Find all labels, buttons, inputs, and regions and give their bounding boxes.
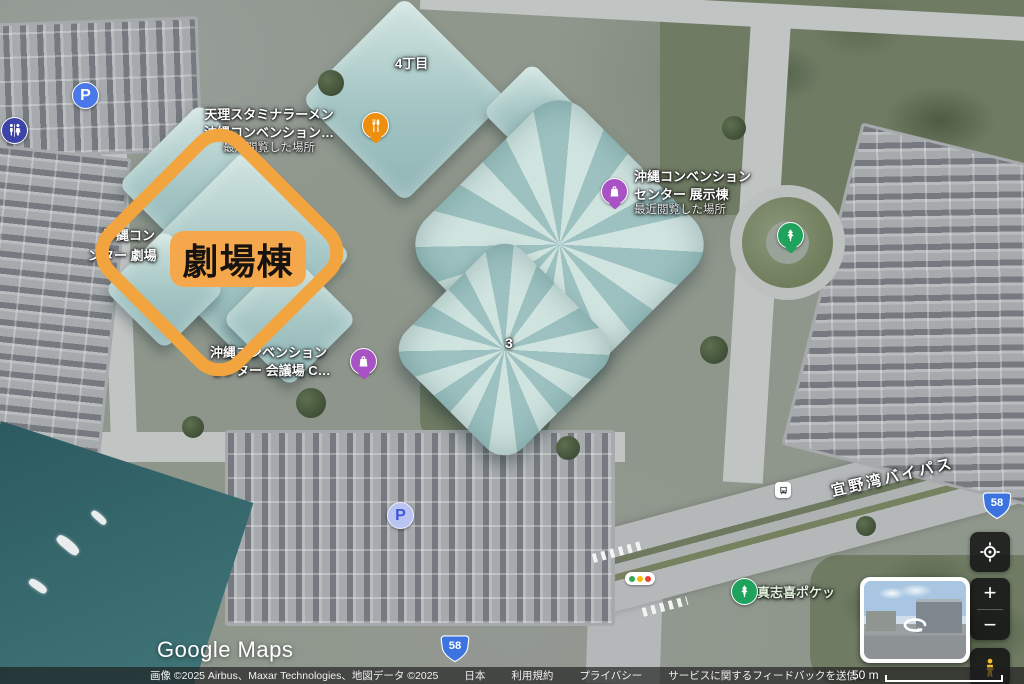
zoom-control: + − — [970, 578, 1010, 640]
route-shield-58-bottom: 58 — [440, 635, 470, 663]
google-maps-logo[interactable]: Google Maps — [157, 637, 293, 663]
zoom-in-button[interactable]: + — [970, 578, 1010, 609]
restaurant-icon[interactable] — [362, 112, 389, 139]
label-park-mashiki-pocket[interactable]: 真志喜ポケッ — [757, 584, 835, 602]
link-terms[interactable]: 利用規約 — [511, 668, 553, 683]
attraction-icon-exhibition[interactable] — [601, 178, 628, 205]
imagery-credit: 画像 ©2025 Airbus、Maxar Technologies、地図データ… — [150, 668, 438, 683]
google-maps-satellite-view: 4丁目 天理スタミナラーメン 沖縄コンベンション… 最近閲覧した場所 沖縄コンベ… — [0, 0, 1024, 684]
tree — [856, 516, 876, 536]
tree — [556, 436, 580, 460]
tree — [700, 336, 728, 364]
tree — [182, 416, 204, 438]
rotate-arrow-icon — [898, 615, 932, 635]
route-shield-58-right: 58 — [982, 492, 1012, 520]
scale-line — [885, 675, 1003, 682]
street-view-preview[interactable] — [860, 577, 970, 663]
parking-lot-bottom — [225, 430, 615, 626]
tree-icon-roundabout[interactable] — [777, 222, 804, 249]
attraction-icon-conference[interactable] — [350, 348, 377, 375]
svg-text:58: 58 — [449, 640, 461, 652]
link-country[interactable]: 日本 — [464, 668, 485, 683]
link-privacy[interactable]: プライバシー — [579, 668, 642, 683]
restroom-icon[interactable] — [1, 117, 28, 144]
my-location-icon — [979, 541, 1001, 563]
parking-icon[interactable]: P — [72, 82, 99, 109]
highlight-label-theater-building: 劇場棟 — [170, 231, 306, 287]
label-district-4chome: 4丁目 — [395, 55, 428, 73]
cloud — [874, 585, 934, 599]
link-feedback[interactable]: サービスに関するフィードバックを送信 — [668, 668, 857, 683]
bus-stop-icon[interactable] — [775, 482, 791, 498]
scale-label: 50 m — [852, 668, 879, 682]
tree-icon-park[interactable] — [731, 578, 758, 605]
svg-text:58: 58 — [991, 497, 1003, 509]
parking-icon-lot[interactable]: P — [387, 502, 414, 529]
scale-bar: 50 m — [852, 668, 1003, 682]
traffic-light-icon — [625, 572, 655, 585]
label-exhibition-hall[interactable]: 沖縄コンベンション センター 展示棟 最近閲覧した場所 — [634, 168, 751, 219]
label-block-3: 3 — [505, 334, 513, 353]
tree — [722, 116, 746, 140]
tree — [318, 70, 344, 96]
tree — [296, 388, 326, 418]
building-silhouette — [866, 611, 896, 631]
zoom-out-button[interactable]: − — [970, 610, 1010, 641]
my-location-button[interactable] — [970, 532, 1010, 572]
